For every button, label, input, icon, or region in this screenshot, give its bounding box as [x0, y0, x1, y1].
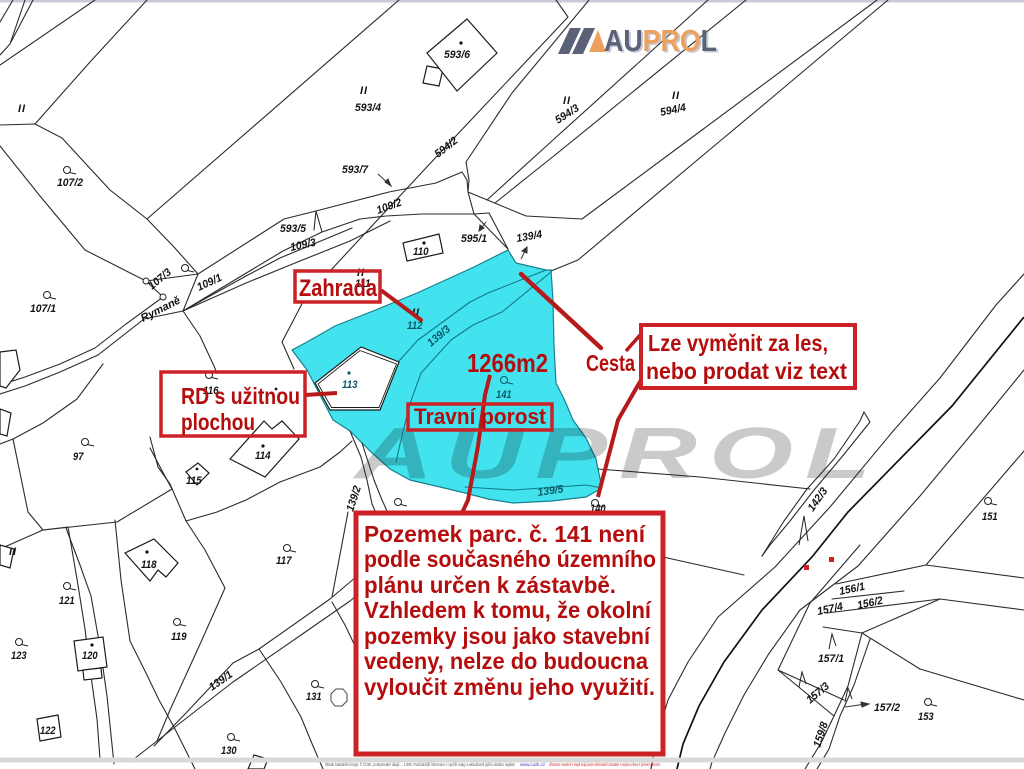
svg-text:110: 110: [413, 246, 429, 258]
svg-text:113: 113: [342, 379, 358, 391]
svg-text:II: II: [9, 546, 17, 558]
svg-text:II: II: [563, 95, 571, 107]
svg-text:podle současného územního: podle současného územního: [364, 546, 656, 572]
svg-text:Pozemek parc. č. 141 není: Pozemek parc. č. 141 není: [364, 521, 647, 547]
svg-text:Obsah katastrální mapy: © ČÚZK: Obsah katastrální mapy: © ČÚZK, poskytov…: [325, 762, 516, 767]
svg-text:123: 123: [11, 650, 27, 662]
svg-text:II: II: [672, 90, 680, 102]
svg-text:593/5: 593/5: [280, 223, 307, 235]
svg-text:593/7: 593/7: [342, 164, 369, 176]
svg-text:119: 119: [171, 631, 187, 643]
svg-text:Informace uvedené v mapě mají: Informace uvedené v mapě mají pouze info…: [549, 762, 661, 767]
svg-text:107/1: 107/1: [30, 303, 56, 315]
svg-text:www.cuzk.cz: www.cuzk.cz: [520, 762, 545, 767]
svg-text:130: 130: [221, 745, 237, 757]
svg-text:vedeny, nelze do budoucna: vedeny, nelze do budoucna: [364, 648, 648, 674]
svg-text:157/2: 157/2: [874, 702, 900, 714]
svg-text:118: 118: [141, 559, 157, 571]
svg-text:Vzhledem k tomu, že okolní: Vzhledem k tomu, že okolní: [364, 597, 653, 623]
svg-text:Zahrada: Zahrada: [299, 275, 378, 302]
svg-text:1266m2: 1266m2: [467, 348, 548, 378]
svg-text:117: 117: [276, 555, 292, 567]
svg-text:593/4: 593/4: [355, 102, 381, 114]
svg-text:131: 131: [306, 691, 322, 703]
svg-text:122: 122: [40, 725, 56, 737]
svg-text:Cesta: Cesta: [586, 350, 635, 376]
svg-text:97: 97: [73, 451, 84, 463]
svg-text:157/1: 157/1: [818, 653, 844, 665]
svg-text:plochou: plochou: [181, 409, 255, 435]
svg-text:RD s užitnou: RD s užitnou: [181, 383, 300, 409]
svg-text:plánu určen k zástavbě.: plánu určen k zástavbě.: [364, 572, 616, 598]
svg-text:pozemky jsou jako stavební: pozemky jsou jako stavební: [364, 623, 652, 649]
svg-text:AUPROL: AUPROL: [604, 23, 717, 58]
svg-text:Travní porost: Travní porost: [414, 404, 547, 429]
svg-text:120: 120: [82, 650, 98, 662]
svg-text:115: 115: [186, 475, 202, 487]
svg-text:II: II: [18, 103, 26, 115]
svg-text:141: 141: [496, 389, 512, 401]
svg-text:153: 153: [918, 711, 934, 723]
svg-text:593/6: 593/6: [444, 49, 471, 61]
svg-text:595/1: 595/1: [461, 233, 487, 245]
svg-text:Lze vyměnit za les,: Lze vyměnit za les,: [648, 330, 828, 356]
svg-text:nebo prodat viz text: nebo prodat viz text: [646, 358, 847, 384]
svg-text:II: II: [360, 85, 368, 97]
svg-text:114: 114: [255, 450, 271, 462]
svg-text:121: 121: [59, 595, 75, 607]
svg-text:151: 151: [982, 511, 998, 523]
svg-text:vyloučit změnu jeho využití.: vyloučit změnu jeho využití.: [364, 674, 655, 700]
svg-text:107/2: 107/2: [57, 177, 83, 189]
